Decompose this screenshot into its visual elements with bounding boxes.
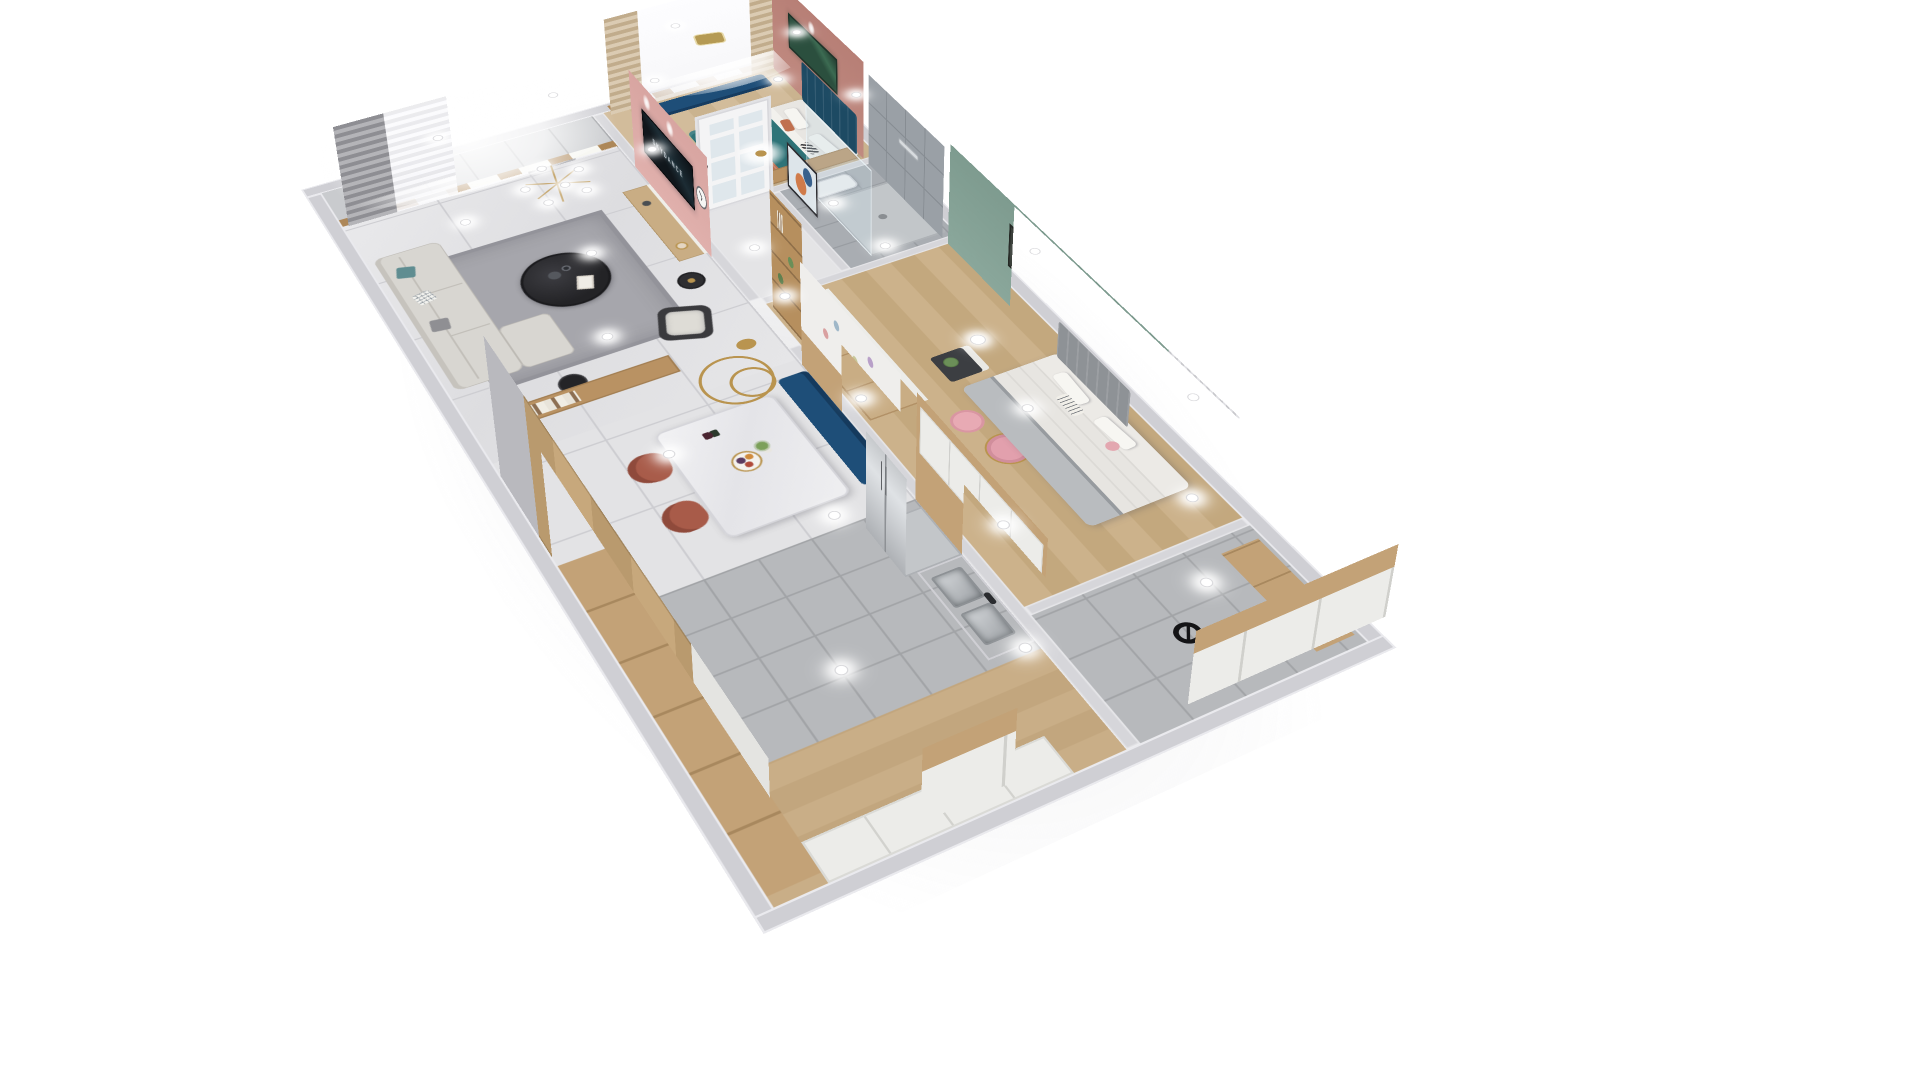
chandelier-globe: [535, 165, 549, 173]
render-canvas: SKYDANCE: [0, 0, 1920, 1080]
tv-brand-text: SKYDANCE: [652, 137, 683, 181]
bedroom2-wall-art: [1008, 223, 1069, 322]
chandelier-globe: [519, 186, 533, 194]
wall-clock: [696, 182, 708, 214]
fridge-door-seam: [884, 454, 886, 553]
chandelier-globe: [542, 199, 556, 207]
shelf-plant-1: [778, 271, 784, 286]
shower-drain: [877, 213, 889, 220]
wine-bottles: [701, 429, 720, 440]
fridge-handles: [881, 461, 882, 491]
apartment-3d-stage: SKYDANCE: [470, 0, 1090, 965]
hallway-flower-lamp: [738, 141, 784, 167]
chandelier-globe: [572, 165, 586, 173]
shower-fixture: [899, 139, 917, 160]
sofa-pillow-teal: [396, 266, 415, 279]
coffee-table-vase: [546, 270, 563, 281]
wire-table-lamp: [673, 241, 690, 251]
coffee-table-book: [577, 275, 595, 290]
shelf-plant-2: [788, 255, 794, 271]
fruit-platter: [726, 447, 768, 475]
art-gold-streak: [1027, 263, 1051, 305]
shelf-books: [777, 210, 783, 234]
apartment-floorplate: SKYDANCE: [301, 51, 1396, 934]
chandelier-globe: [580, 186, 594, 194]
bedroom2-green-wall: [948, 144, 1239, 524]
tv-console-vase: [641, 200, 653, 207]
